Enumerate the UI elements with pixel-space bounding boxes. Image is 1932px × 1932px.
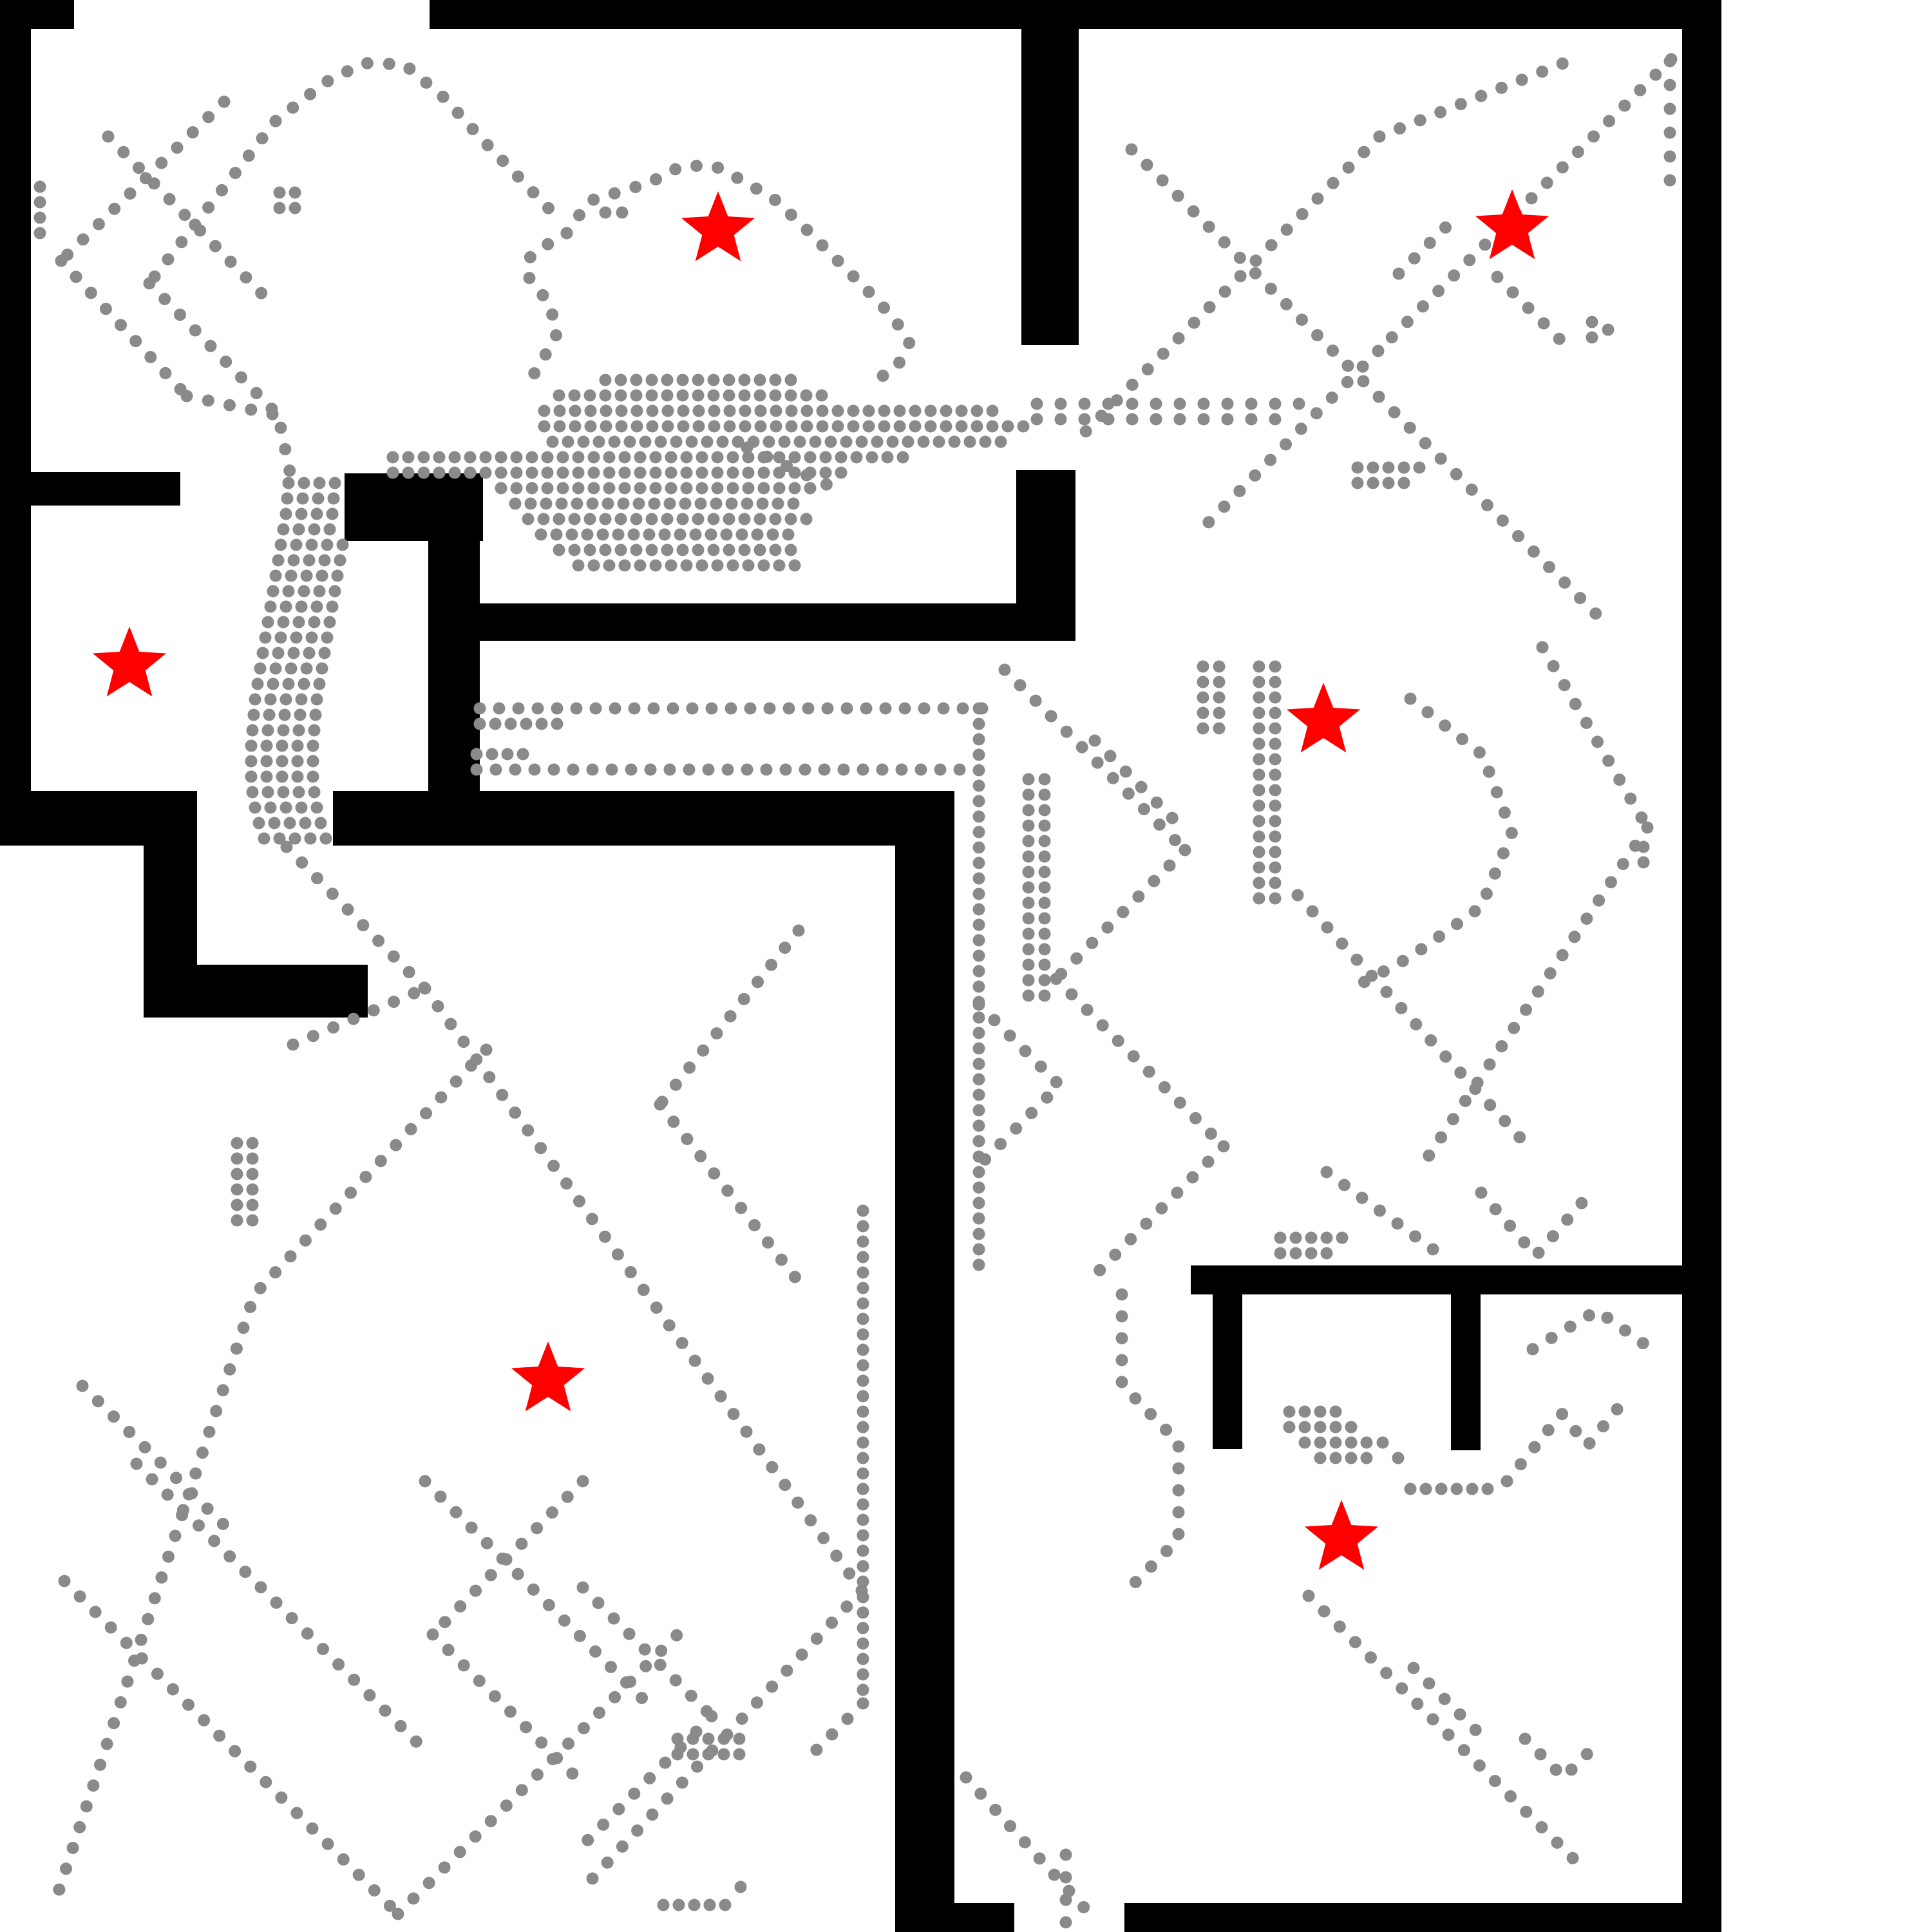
trail-dot <box>1392 1452 1405 1464</box>
trail-dot <box>1173 332 1185 345</box>
trail-dot <box>55 255 68 267</box>
trail-dot <box>308 786 321 799</box>
trail-dot <box>296 508 308 520</box>
trail-dot <box>612 1803 625 1815</box>
trail-dot <box>1482 1483 1494 1495</box>
trail-dot <box>973 1151 985 1163</box>
trail-dot <box>703 1733 715 1745</box>
trail-dot <box>1197 676 1209 688</box>
trail-dot <box>782 529 795 541</box>
trail-dot <box>954 764 966 776</box>
trail-dot <box>664 764 676 776</box>
trail-dot <box>857 1205 869 1217</box>
trail-dot <box>1253 753 1265 766</box>
trail-dot <box>634 560 647 572</box>
trail-dot <box>245 755 258 768</box>
trail-dot <box>1094 1264 1106 1276</box>
trail-dot <box>1374 131 1386 143</box>
trail-dot <box>486 748 498 761</box>
trail-dot <box>108 1717 120 1729</box>
trail-dot <box>272 647 285 659</box>
trail-dot <box>633 498 645 510</box>
trail-dot <box>702 1372 714 1385</box>
trail-dot <box>1173 1528 1185 1540</box>
trail-dot <box>281 493 294 505</box>
trail-dot <box>1092 757 1104 769</box>
trail-dot <box>1537 641 1549 654</box>
trail-dot <box>1253 661 1265 673</box>
trail-dot <box>857 1437 869 1449</box>
trail-dot <box>662 405 674 417</box>
trail-dot <box>754 544 766 556</box>
trail-dot <box>375 1155 387 1167</box>
trail-dot <box>857 1607 869 1619</box>
trail-dot <box>427 1629 439 1641</box>
trail-dot <box>973 919 985 931</box>
trail-dot <box>727 482 739 495</box>
trail-dot <box>480 467 492 479</box>
trail-dot <box>957 703 969 715</box>
trail-dot <box>265 802 277 814</box>
trail-dot <box>308 616 321 629</box>
trail-dot <box>1269 862 1282 874</box>
trail-dot <box>1145 1560 1157 1573</box>
trail-dot <box>973 842 985 854</box>
trail-dot <box>525 498 537 510</box>
trail-dot <box>311 601 323 613</box>
trail-dot <box>298 678 310 690</box>
trail-dot <box>585 405 597 417</box>
trail-dot <box>1023 959 1035 971</box>
trail-dot <box>1546 1332 1558 1344</box>
wall-north-mid-wall-upper <box>1021 0 1079 345</box>
trail-dot <box>1269 769 1282 781</box>
trail-dot <box>269 1266 281 1278</box>
trail-dot <box>1386 331 1398 343</box>
trail-dot <box>149 1592 161 1604</box>
trail-dot <box>220 355 232 368</box>
trail-dot <box>909 421 922 433</box>
trail-dot <box>1380 1667 1392 1679</box>
trail-dot <box>973 811 985 823</box>
trail-dot <box>500 1553 513 1566</box>
trail-dot <box>1077 1901 1090 1913</box>
trail-dot <box>973 1228 985 1240</box>
trail-dot <box>449 467 461 479</box>
trail-dot <box>1536 66 1548 78</box>
trail-dot <box>368 1004 380 1016</box>
trail-dot <box>848 421 860 433</box>
trail-dot <box>658 1899 670 1911</box>
trail-dot <box>785 390 797 402</box>
trail-dot <box>804 482 817 495</box>
trail-dot <box>73 1821 86 1833</box>
trail-dot <box>670 1629 683 1642</box>
trail-dot <box>1611 1403 1624 1416</box>
trail-dot <box>1117 906 1129 918</box>
trail-dot <box>631 421 643 433</box>
trail-dot <box>1128 1050 1140 1063</box>
trail-dot <box>724 1010 737 1023</box>
trail-dot <box>279 709 291 721</box>
trail-dot <box>738 993 750 1005</box>
trail-dot <box>327 508 339 520</box>
trail-dot <box>755 421 767 433</box>
trail-dot <box>1151 797 1163 809</box>
trail-dot <box>324 524 336 536</box>
trail-dot <box>871 436 884 448</box>
trail-dot <box>1479 238 1491 251</box>
trail-dot <box>673 1899 685 1911</box>
trail-dot <box>629 703 641 715</box>
trail-dot <box>902 436 914 448</box>
trail-dot <box>1484 1058 1496 1070</box>
trail-dot <box>1143 1066 1155 1078</box>
trail-dot <box>770 390 782 402</box>
trail-dot <box>53 1884 65 1896</box>
trail-dot <box>612 1248 624 1260</box>
trail-dot <box>311 802 323 814</box>
trail-dot <box>712 467 724 479</box>
trail-dot <box>1481 887 1493 900</box>
trail-dot <box>202 202 214 214</box>
trail-dot <box>781 1665 793 1677</box>
trail-dot <box>321 75 334 88</box>
trail-dot <box>1326 392 1338 404</box>
trail-dot <box>1401 316 1414 328</box>
trail-dot <box>287 1039 299 1051</box>
trail-dot <box>420 77 432 89</box>
trail-dot <box>77 1380 89 1392</box>
trail-dot <box>542 238 554 251</box>
trail-dot <box>600 390 612 402</box>
trail-dot <box>667 1115 679 1128</box>
trail-dot <box>1039 804 1051 817</box>
trail-dot <box>467 123 479 135</box>
trail-dot <box>239 1566 251 1578</box>
trail-dot <box>1504 1790 1517 1803</box>
trail-dot <box>1109 1249 1121 1261</box>
trail-dot <box>677 513 689 526</box>
trail-dot <box>571 703 583 715</box>
trail-dot <box>433 451 446 464</box>
trail-dot <box>857 1375 869 1387</box>
trail-dot <box>321 632 334 644</box>
trail-dot <box>718 1748 730 1761</box>
trail-dot <box>681 467 693 479</box>
trail-dot <box>142 1613 154 1625</box>
trail-dot <box>551 703 563 715</box>
trail-dot <box>159 367 171 379</box>
trail-dot <box>1197 707 1209 719</box>
trail-dot <box>1475 90 1487 102</box>
trail-dot <box>1618 100 1631 112</box>
trail-dot <box>765 959 777 971</box>
trail-dot <box>1253 800 1265 812</box>
trail-dot <box>262 724 274 737</box>
trail-dot <box>509 1106 521 1119</box>
trail-dot <box>732 436 744 448</box>
trail-dot <box>646 513 658 526</box>
trail-dot <box>1023 820 1035 832</box>
trail-dot <box>1060 1894 1072 1906</box>
trail-dot <box>1561 1213 1573 1226</box>
trail-dot <box>1569 1425 1582 1437</box>
trail-dot <box>605 1661 617 1673</box>
trail-dot <box>316 570 328 582</box>
trail-dot <box>1543 561 1555 573</box>
trail-dot <box>1010 1122 1022 1135</box>
trail-dot <box>751 1696 763 1709</box>
trail-dot <box>301 663 313 675</box>
trail-dot <box>1265 239 1278 251</box>
trail-dot <box>1584 1437 1596 1450</box>
trail-dot <box>485 1815 497 1827</box>
trail-dot <box>249 694 261 706</box>
trail-dot <box>1358 375 1370 388</box>
trail-dot <box>196 1446 209 1459</box>
trail-dot <box>603 560 616 572</box>
trail-dot <box>193 1519 205 1531</box>
trail-dot <box>1528 1441 1540 1454</box>
trail-dot <box>1425 1034 1437 1046</box>
trail-dot <box>315 817 327 829</box>
trail-dot <box>878 301 890 314</box>
trail-dot <box>238 1321 250 1334</box>
trail-dot <box>592 1597 605 1609</box>
trail-dot <box>687 703 699 715</box>
wall-left-upper-divider <box>0 472 180 506</box>
trail-dot <box>465 1059 477 1072</box>
trail-dot <box>1299 1437 1311 1449</box>
trail-dot <box>1439 1693 1451 1705</box>
trail-dot <box>609 1691 621 1703</box>
trail-dot <box>638 1283 650 1296</box>
trail-dot <box>1568 931 1580 943</box>
trail-dot <box>601 1857 614 1869</box>
map-canvas <box>0 0 1932 1932</box>
trail-dot <box>558 1615 571 1627</box>
trail-dot <box>418 467 430 479</box>
trail-dot <box>842 1713 854 1725</box>
trail-dot <box>650 1302 663 1314</box>
trail-dot <box>205 340 217 352</box>
trail-dot <box>1516 73 1528 86</box>
trail-dot <box>973 965 985 978</box>
trail-dot <box>270 115 282 128</box>
trail-dot <box>296 802 308 814</box>
trail-dot <box>265 601 277 613</box>
trail-dot <box>92 1395 104 1407</box>
trail-dot <box>672 1748 684 1761</box>
trail-dot <box>495 482 507 495</box>
trail-dot <box>918 436 930 448</box>
trail-dot <box>274 187 286 199</box>
trail-dot <box>1126 413 1139 426</box>
trail-dot <box>387 467 399 479</box>
trail-dot <box>247 786 259 799</box>
trail-dot <box>1459 1095 1472 1107</box>
trail-dot <box>949 436 961 448</box>
trail-dot <box>779 1479 791 1491</box>
trail-dot <box>789 451 801 464</box>
trail-dot <box>600 374 612 386</box>
trail-dot <box>296 857 308 869</box>
trail-dot <box>773 560 786 572</box>
trail-dot <box>1342 360 1354 372</box>
trail-dot <box>1619 1325 1631 1337</box>
trail-dot <box>1377 1437 1389 1449</box>
trail-dot <box>1587 130 1600 142</box>
trail-dot <box>515 1538 527 1550</box>
trail-dot <box>120 1637 133 1649</box>
trail-dot <box>562 436 574 448</box>
wall-stair-horizontal <box>144 965 368 1018</box>
trail-dot <box>311 694 323 706</box>
trail-dot <box>402 467 415 479</box>
trail-dot <box>616 405 628 417</box>
trail-dot <box>535 1142 547 1154</box>
trail-dot <box>569 544 581 556</box>
trail-dot <box>1542 1424 1555 1436</box>
trail-dot <box>630 390 643 402</box>
trail-dot <box>1414 114 1426 126</box>
trail-dot <box>1345 1421 1358 1434</box>
trail-dot <box>1492 271 1504 283</box>
trail-dot <box>661 390 674 402</box>
trail-dot <box>291 1807 303 1819</box>
trail-dot <box>566 1767 578 1779</box>
trail-dot <box>1269 815 1282 828</box>
trail-dot <box>897 451 909 464</box>
trail-dot <box>1538 317 1550 330</box>
trail-dot <box>1507 287 1519 299</box>
trail-dot <box>1550 1764 1562 1776</box>
trail-dot <box>600 513 612 526</box>
trail-dot <box>551 718 563 730</box>
trail-dot <box>265 402 278 415</box>
trail-dot <box>665 467 677 479</box>
trail-dot <box>108 1410 120 1423</box>
trail-dot <box>1269 800 1282 812</box>
wall-north-mid-wall-lower <box>1016 470 1075 641</box>
trail-dot <box>1483 766 1495 778</box>
trail-dot <box>1501 1475 1513 1488</box>
trail-dot <box>1299 1421 1311 1434</box>
trail-dot <box>1160 1424 1172 1436</box>
trail-dot <box>204 1426 216 1438</box>
trail-dot <box>1204 301 1216 314</box>
trail-dot <box>773 467 786 479</box>
trail-dot <box>1269 413 1282 426</box>
trail-dot <box>697 1045 709 1057</box>
trail-dot <box>1409 1230 1421 1242</box>
trail-dot <box>1504 1220 1516 1232</box>
trail-dot <box>708 544 720 556</box>
trail-dot <box>247 1215 259 1227</box>
trail-dot <box>1197 723 1209 735</box>
trail-dot <box>1219 285 1231 298</box>
trail-dot <box>569 405 582 417</box>
trail-dot <box>553 544 565 556</box>
trail-dot <box>1079 398 1091 410</box>
trail-dot <box>973 873 985 885</box>
trail-dot <box>1617 858 1629 870</box>
trail-dot <box>587 764 599 776</box>
trail-dot <box>1283 1406 1296 1418</box>
trail-dot <box>1519 1733 1531 1745</box>
trail-dot <box>1365 970 1378 982</box>
trail-dot <box>1019 1836 1031 1848</box>
trail-dot <box>816 390 828 402</box>
trail-dot <box>567 764 580 776</box>
trail-dot <box>1443 1728 1455 1741</box>
trail-dot <box>1039 990 1051 1002</box>
trail-dot <box>650 560 662 572</box>
trail-dot <box>587 194 600 206</box>
trail-dot <box>1269 784 1282 797</box>
trail-dot <box>245 771 258 783</box>
trail-dot <box>1411 1698 1423 1710</box>
trail-dot <box>1527 1343 1539 1356</box>
trail-dot <box>1321 922 1334 934</box>
trail-dot <box>973 826 985 838</box>
trail-dot <box>1532 985 1544 998</box>
trail-dot <box>573 467 585 479</box>
trail-dot <box>1352 462 1364 474</box>
trail-dot <box>857 1313 869 1325</box>
trail-dot <box>857 1499 869 1511</box>
trail-dot <box>1039 882 1051 894</box>
trail-dot <box>337 1853 350 1866</box>
trail-dot <box>994 1138 1007 1150</box>
trail-dot <box>687 1748 699 1761</box>
trail-dot <box>1039 959 1051 971</box>
trail-dot <box>785 513 797 526</box>
trail-dot <box>1155 1202 1168 1215</box>
trail-dot <box>662 421 674 433</box>
trail-dot <box>247 1168 259 1180</box>
trail-dot <box>1280 298 1293 310</box>
trail-dot <box>1039 835 1051 848</box>
trail-dot <box>857 1684 869 1696</box>
trail-dot <box>973 1135 985 1148</box>
trail-dot <box>857 764 869 776</box>
trail-dot <box>822 703 834 715</box>
trail-dot <box>1508 1022 1520 1034</box>
trail-dot <box>1173 1463 1185 1475</box>
trail-dot <box>973 764 985 777</box>
trail-dot <box>770 405 782 417</box>
trail-dot <box>1142 363 1154 375</box>
trail-dot <box>170 1472 182 1484</box>
trail-dot <box>1290 1232 1302 1244</box>
trail-dot <box>1048 1869 1061 1881</box>
trail-dot <box>693 421 705 433</box>
trail-dot <box>973 1089 985 1101</box>
trail-dot <box>835 467 848 479</box>
trail-dot <box>811 1633 823 1645</box>
trail-dot <box>526 451 538 464</box>
trail-dot <box>231 1199 243 1211</box>
trail-dot <box>857 1344 869 1356</box>
trail-dot <box>306 539 318 551</box>
trail-dot <box>247 1199 259 1211</box>
trail-dot <box>695 498 707 510</box>
trail-dot <box>1434 106 1446 118</box>
trail-dot <box>419 1475 431 1488</box>
trail-dot <box>1417 300 1429 312</box>
